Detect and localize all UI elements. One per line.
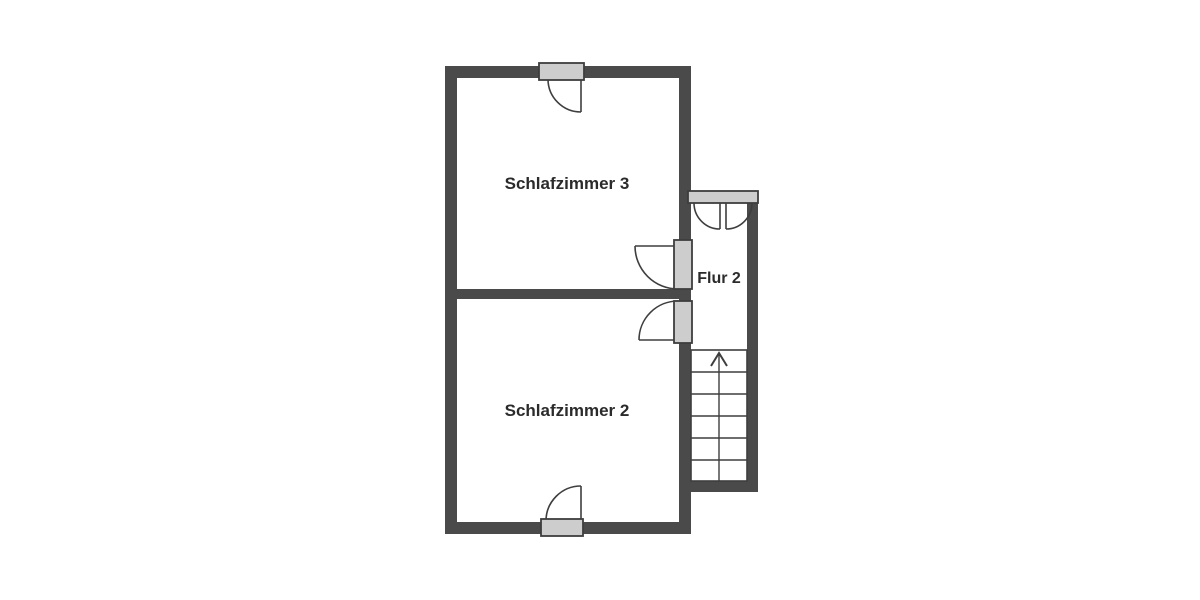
wall-right-main	[679, 66, 691, 534]
door-schlafzimmer-2-bottom	[541, 486, 583, 536]
wall-flur-right	[747, 192, 758, 492]
wall-room-divider	[445, 289, 691, 299]
wall-stairs-bottom	[679, 481, 758, 492]
door-swing-arc	[639, 301, 678, 340]
room-label-flur-2: Flur 2	[697, 270, 741, 287]
door-swing-arc-left	[694, 203, 720, 229]
door-swing-arc	[546, 486, 581, 521]
door-schlafzimmer-3-to-flur	[635, 240, 692, 289]
door-panel	[541, 519, 583, 536]
room-label-schlafzimmer-3: Schlafzimmer 3	[505, 174, 630, 193]
floor-plan-canvas: Schlafzimmer 3 Schlafzimmer 2 Flur 2	[0, 0, 1200, 600]
door-panel	[539, 63, 584, 80]
door-schlafzimmer-2-to-flur	[639, 301, 692, 343]
floor-plan: Schlafzimmer 3 Schlafzimmer 2 Flur 2	[0, 0, 1200, 600]
staircase	[691, 350, 747, 481]
wall-left	[445, 66, 457, 534]
door-swing-arc	[548, 79, 581, 112]
door-swing-arc	[635, 246, 678, 289]
room-label-schlafzimmer-2: Schlafzimmer 2	[505, 401, 630, 420]
door-schlafzimmer-3-top	[539, 63, 584, 112]
door-panel	[688, 191, 758, 203]
door-panel	[674, 301, 692, 343]
door-panel	[674, 240, 692, 289]
